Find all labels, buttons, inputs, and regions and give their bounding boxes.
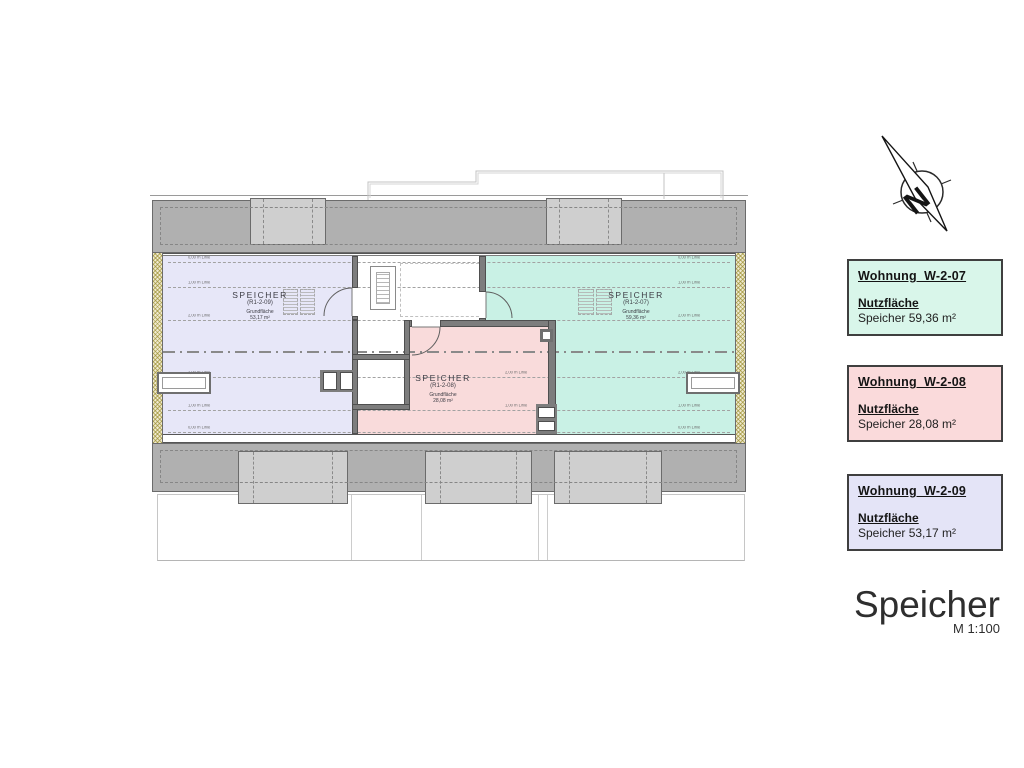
exterior-wall-bottom [152,434,746,443]
chimney-flue [538,421,555,432]
roof-edge-line [150,195,748,196]
chimney-flue [340,372,354,390]
legend-wohnung-w-2-07: Wohnung W-2-07 Nutzfläche Speicher 59,36… [847,259,1003,336]
legend-section-label: Nutzfläche [858,511,992,525]
room-area: 28,08 m² [388,398,498,404]
legend-value: Speicher 59,36 m² [858,311,992,325]
height-line-label: 1,00 m Linie [188,281,210,285]
wall-shaft-bottom [352,404,410,410]
legend-title: Wohnung W-2-09 [858,484,992,498]
hallway-dashed-outline [400,263,484,317]
chimney-block [320,370,356,392]
height-line-label: 1,00 m Linie [678,404,700,408]
height-line-label: 1,00 m Linie [678,281,700,285]
room-name: SPEICHER [205,290,315,300]
height-line-label: 0,00 m Linie [678,426,700,430]
roof-access-text [376,272,390,304]
height-line [168,432,730,433]
column [540,329,553,342]
north-arrow: N [876,128,966,243]
ridge-line [163,351,735,353]
wall [479,256,486,292]
room-id: (R1-2-07) [581,300,691,306]
room-label-R1-2-08: SPEICHER (R1-2-08) Grundfläche 28,08 m² [388,373,498,404]
wall [440,320,556,327]
wall-niche-right [686,372,740,394]
gable-wall-left [152,253,163,443]
sheet-scale: M 1:100 [953,621,1000,636]
height-line [168,287,730,288]
compass-letter: N [897,180,936,221]
outline-divider [351,495,352,560]
legend-value: Speicher 53,17 m² [858,526,992,540]
room-label-R1-2-09: SPEICHER (R1-2-09) Grundfläche 53,17 m² [205,290,315,321]
room-id: (R1-2-08) [388,383,498,389]
door-opening [352,288,358,316]
height-line-label: 0,00 m Linie [188,256,210,260]
wall-shaft-mid [352,354,410,360]
sheet: 0,00 m Linie 1,00 m Linie 2,00 m Linie 2… [0,0,1024,768]
wall-niche-left [157,372,211,394]
wall [352,256,358,288]
height-line-label: 0,00 m Linie [188,426,210,430]
height-line-label: 1,00 m Linie [188,404,210,408]
roof-dashed-top [160,207,737,245]
door-opening [412,320,440,327]
height-line [168,410,730,411]
exterior-wall-top [152,253,746,256]
room-label-R1-2-07: SPEICHER (R1-2-07) Grundfläche 59,36 m² [581,290,691,321]
legend-title: Wohnung W-2-08 [858,375,992,389]
room-area: 59,36 m² [581,315,691,321]
outline-divider [547,495,548,560]
room-name: SPEICHER [388,373,498,383]
chimney-block [536,404,557,434]
outline-divider [538,495,539,560]
gable-wall-right [735,253,746,443]
wall-niche-inner [162,377,206,389]
room-id: (R1-2-09) [205,300,315,306]
height-line-label: 0,00 m Linie [678,256,700,260]
outline-divider [421,495,422,560]
lower-floor-outline [157,494,745,561]
sheet-title: Speicher [854,584,1000,626]
legend-section-label: Nutzfläche [858,296,992,310]
height-line-label: 2,00 m Linie [505,371,527,375]
legend-section-label: Nutzfläche [858,402,992,416]
legend-value: Speicher 28,08 m² [858,417,992,431]
wall-niche-inner [691,377,735,389]
height-line-label: 1,00 m Linie [505,404,527,408]
legend-wohnung-w-2-08: Wohnung W-2-08 Nutzfläche Speicher 28,08… [847,365,1003,442]
roof-access-box [370,266,396,310]
chimney-flue [538,407,555,418]
room-area: 53,17 m² [205,315,315,321]
room-name: SPEICHER [581,290,691,300]
height-line-label: 2,00 m Linie [188,371,210,375]
legend-wohnung-w-2-09: Wohnung W-2-09 Nutzfläche Speicher 53,17… [847,474,1003,551]
roof-dashed-bottom [160,450,737,483]
chimney-flue [323,372,337,390]
height-line [168,262,730,263]
height-line-label: 2,00 m Linie [678,371,700,375]
door-opening [479,292,486,318]
legend-title: Wohnung W-2-07 [858,269,992,283]
